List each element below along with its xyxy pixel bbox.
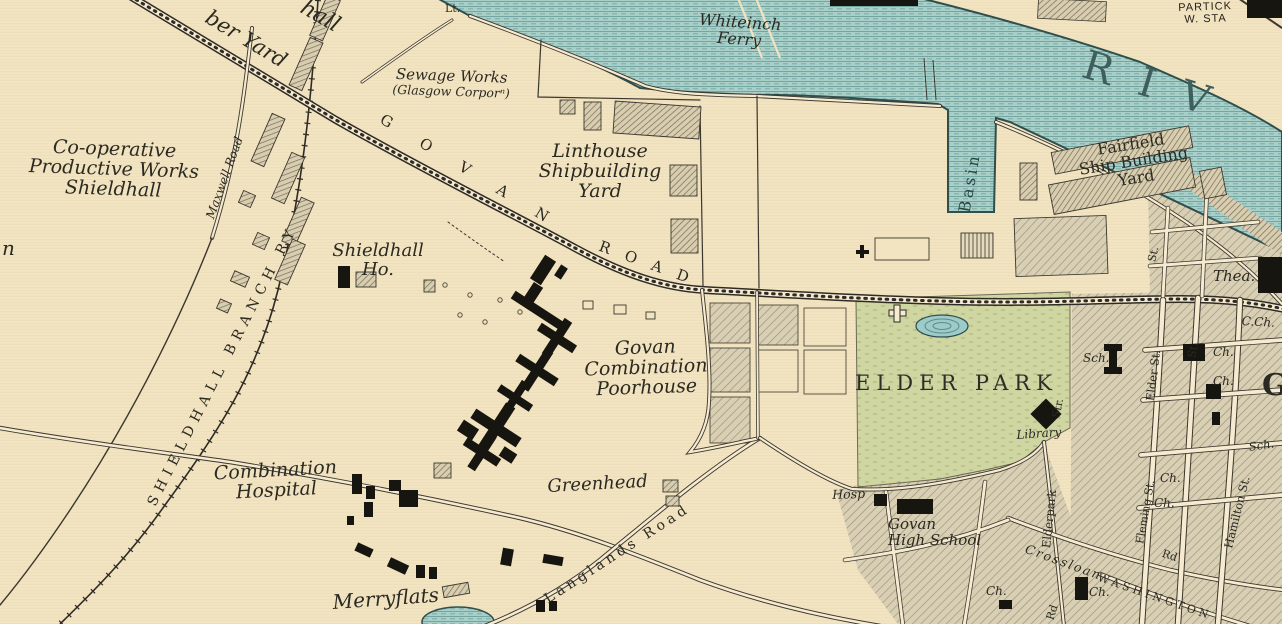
label-church-3: Ch. (1160, 472, 1181, 485)
label-cooperative-works: Co-operative Productive Works Shieldhall (0, 136, 230, 204)
label-street-mid: St. (1186, 342, 1200, 359)
label-sewage-works: Sewage Works (Glasgow Corporⁿ) (371, 66, 532, 100)
label-church-6: Ch. (986, 585, 1007, 598)
label-church-2: Ch. (1213, 375, 1234, 388)
label-church-1: Ch. (1213, 346, 1234, 359)
label-lt: Lt. (445, 3, 460, 15)
label-c-church: C.Ch. (1241, 315, 1275, 329)
label-elder-park: ELDER PARK (855, 372, 1058, 394)
label-school-park: Sch. (1083, 352, 1109, 365)
label-govan-high-school: Govan High School (888, 517, 981, 549)
label-hosp: Hosp (832, 487, 865, 501)
shieldhall-branch-railway (60, 0, 318, 624)
label-church-4: Ch. (1154, 497, 1175, 510)
label-partick-station: PARTICK W. STA (1150, 0, 1261, 27)
map-canvas[interactable]: hall ber Yard Lt. Whiteinch Ferry PARTIC… (0, 0, 1282, 624)
label-partial-n: n (2, 238, 15, 259)
label-theatre: Thea. (1213, 269, 1255, 285)
label-church-5: Ch. (1089, 586, 1110, 599)
label-linthouse-yard: Linthouse Shipbuilding Yard (520, 142, 680, 202)
label-library: Library (1016, 426, 1062, 442)
tree-marks (443, 283, 522, 324)
label-govan-initial: G (1262, 370, 1282, 402)
label-govan-combination-poorhouse: Govan Combination Poorhouse (545, 335, 747, 402)
label-shieldhall-house: Shieldhall Ho. (318, 242, 438, 280)
label-school-right: Sch. (1248, 437, 1275, 452)
